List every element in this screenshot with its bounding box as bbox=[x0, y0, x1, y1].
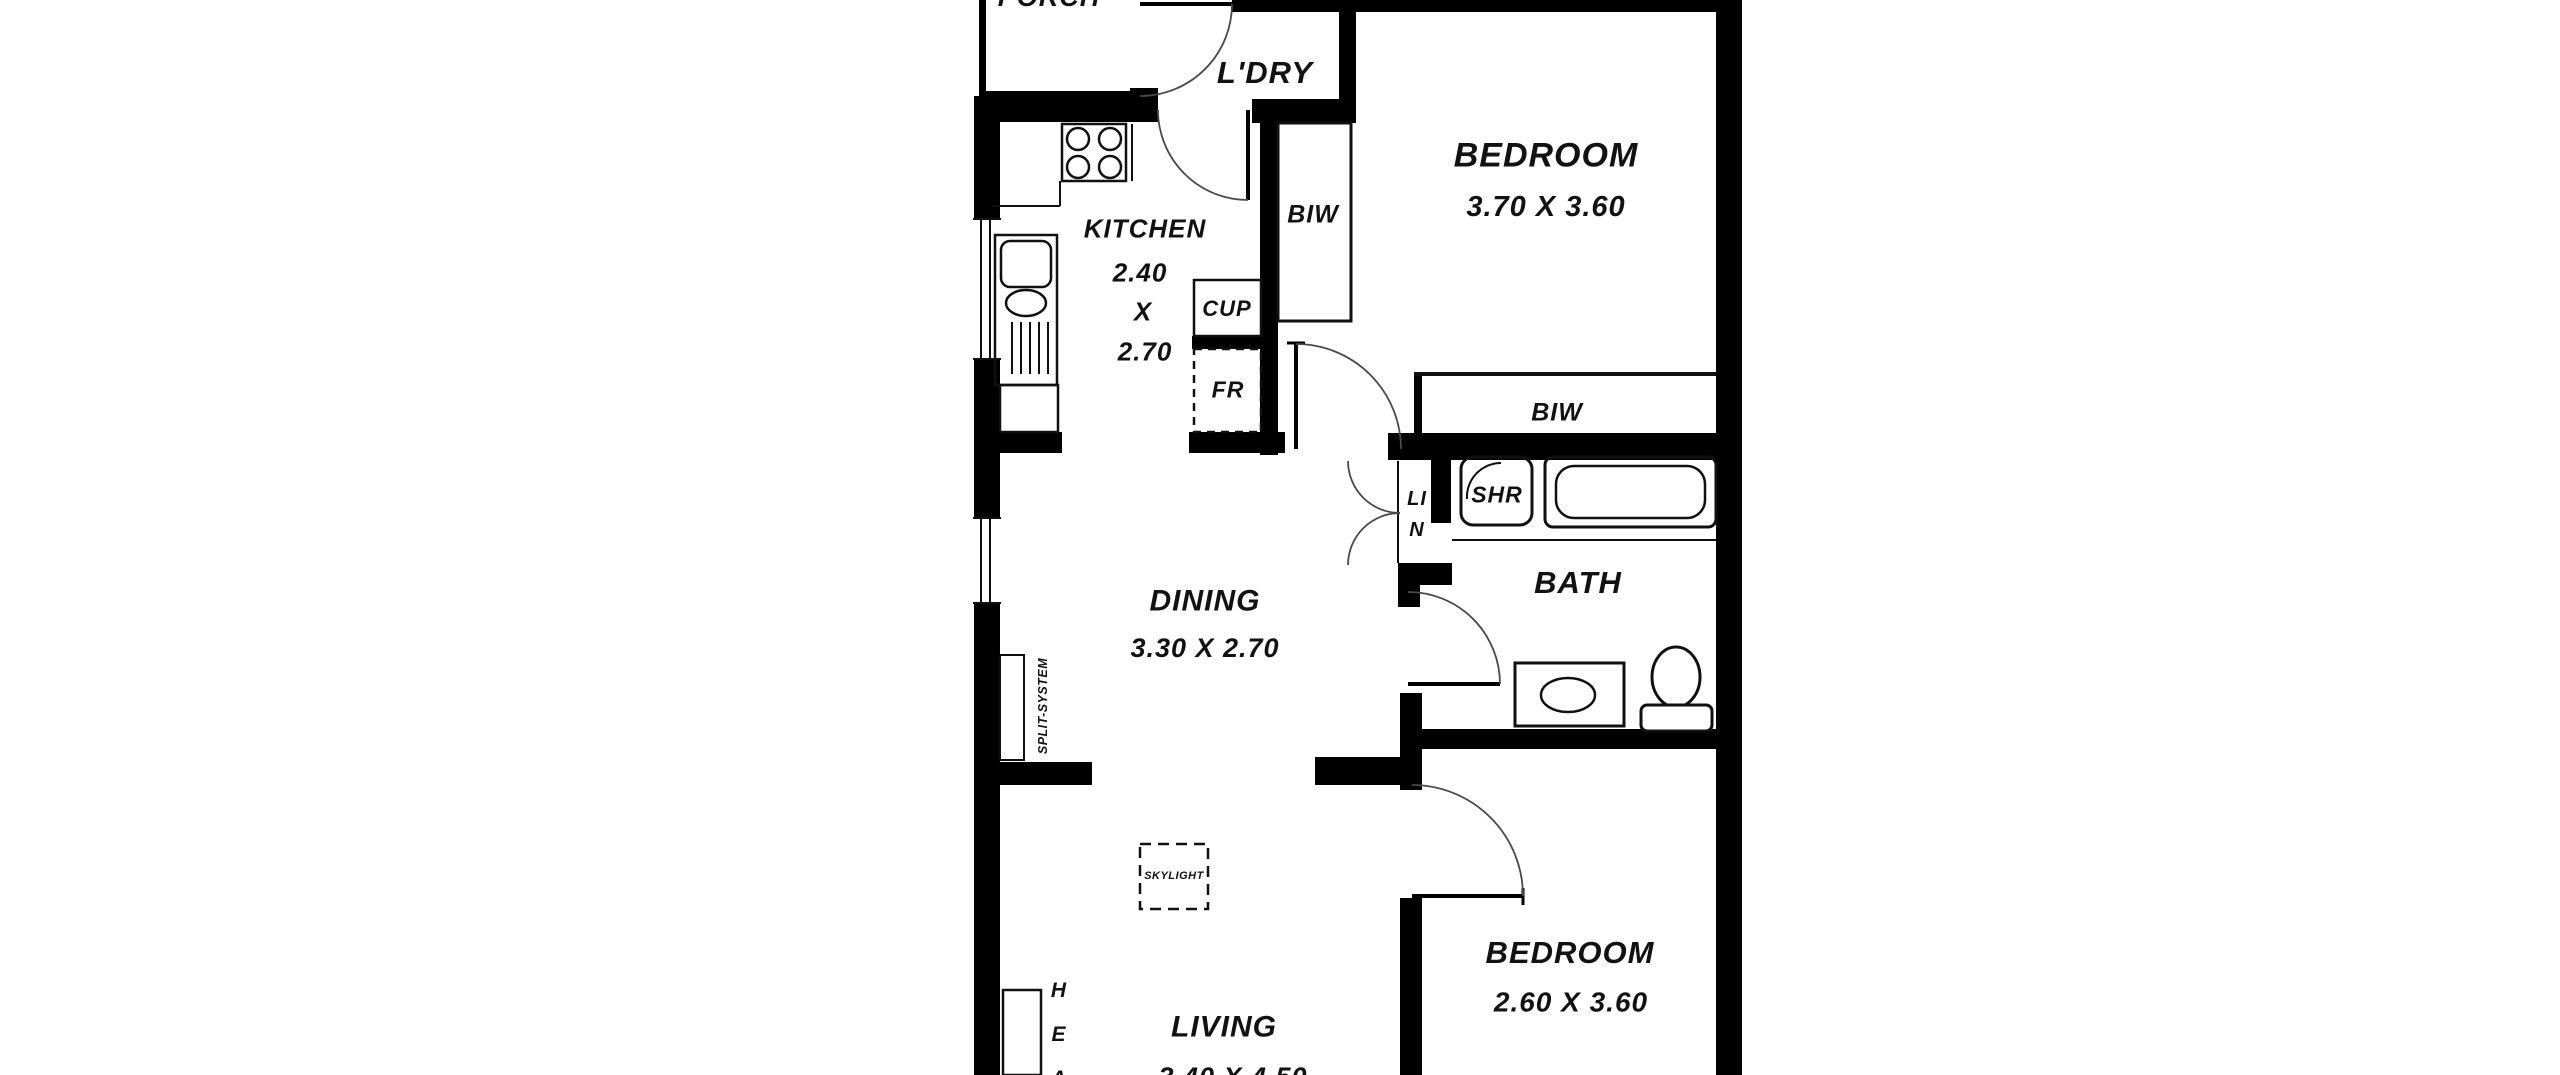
bath-door bbox=[1408, 592, 1500, 684]
wall-kitchen-bottom-right bbox=[1189, 432, 1285, 453]
hall-door bbox=[1287, 343, 1401, 449]
wall-kitchen-bottom-left bbox=[980, 432, 1062, 453]
dining-dims: 3.30 X 2.70 bbox=[1130, 634, 1279, 664]
vanity bbox=[1515, 663, 1624, 726]
linen-label: LI N bbox=[1407, 484, 1427, 546]
wall-linen-bottom-h bbox=[1398, 563, 1452, 585]
bedroom2-dims: 2.60 X 3.60 bbox=[1494, 988, 1648, 1019]
kitchen-door bbox=[1158, 110, 1248, 200]
wall-porch-bottom-thin bbox=[979, 91, 1130, 97]
stove bbox=[1062, 124, 1132, 181]
wall-cupboard-bottom bbox=[1192, 336, 1262, 349]
floor-plan-linework bbox=[0, 0, 2560, 1075]
toilet bbox=[1641, 647, 1712, 731]
skylight-label: SKYLIGHT bbox=[1144, 870, 1204, 882]
wall-top bbox=[1232, 0, 1742, 12]
wall-linen-shower bbox=[1431, 459, 1451, 523]
bedroom2-door bbox=[1412, 785, 1523, 905]
wall-laundry-bedroom bbox=[1339, 0, 1356, 123]
split-system-unit bbox=[1000, 655, 1024, 760]
biw-bedroom1-label: BIW bbox=[1287, 201, 1339, 229]
kitchen-label: KITCHEN bbox=[1084, 215, 1207, 244]
kitchen-sink bbox=[995, 235, 1057, 385]
shower-label: SHR bbox=[1471, 482, 1523, 507]
kitchen-dim-depth: 2.70 bbox=[1118, 338, 1173, 367]
wall-stub-left bbox=[974, 762, 1092, 785]
bath-label: BATH bbox=[1534, 566, 1622, 600]
kitchen-window bbox=[973, 219, 1001, 359]
laundry-label: L'DRY bbox=[1217, 56, 1313, 90]
fridge-label: FR bbox=[1212, 377, 1245, 402]
floor-plan-image: PORCH L'DRY BEDROOM 3.70 X 3.60 KITCHEN … bbox=[0, 0, 2560, 1075]
dining-label: DINING bbox=[1150, 585, 1261, 618]
heater-unit bbox=[1003, 990, 1041, 1075]
linen-doors bbox=[1348, 461, 1400, 565]
wall-left-lower bbox=[974, 603, 1000, 1075]
porch-label: PORCH bbox=[998, 0, 1101, 13]
biw-hall-label: BIW bbox=[1531, 399, 1583, 427]
wall-porch-left-thin bbox=[979, 0, 986, 97]
wall-biw-hall-left bbox=[1414, 372, 1422, 433]
kitchen-dim-x: X bbox=[1134, 298, 1152, 327]
living-label: LIVING bbox=[1171, 1011, 1277, 1044]
wall-linen-bottom-v bbox=[1398, 585, 1420, 607]
wall-bedroom2-left bbox=[1400, 898, 1422, 1075]
wall-kitchen-hall bbox=[1260, 110, 1278, 455]
dining-window bbox=[973, 518, 1001, 603]
living-dims: 3.40 X 4.50 bbox=[1158, 1063, 1307, 1075]
heater-label: HEA bbox=[1046, 969, 1072, 1075]
wall-porch-nub bbox=[1130, 88, 1158, 122]
bedroom1-dims: 3.70 X 3.60 bbox=[1466, 192, 1625, 224]
bathtub bbox=[1545, 457, 1716, 527]
cupboard-label: CUP bbox=[1202, 297, 1251, 321]
split-system-label: SPLIT-SYSTEM bbox=[1037, 658, 1051, 754]
bedroom2-label: BEDROOM bbox=[1486, 936, 1655, 970]
linen-label-line1: LI bbox=[1407, 488, 1427, 510]
under-bench-cabinet bbox=[1000, 385, 1058, 432]
kitchen-bench-edge bbox=[992, 181, 1060, 206]
wall-right bbox=[1716, 0, 1742, 1075]
vanity-basin bbox=[1541, 678, 1595, 712]
kitchen-dim-width: 2.40 bbox=[1113, 259, 1168, 288]
wall-kitchen-top bbox=[974, 97, 1130, 122]
bedroom1-label: BEDROOM bbox=[1454, 137, 1639, 174]
linen-label-line2: N bbox=[1409, 519, 1424, 541]
wall-stub-right bbox=[1315, 757, 1422, 785]
